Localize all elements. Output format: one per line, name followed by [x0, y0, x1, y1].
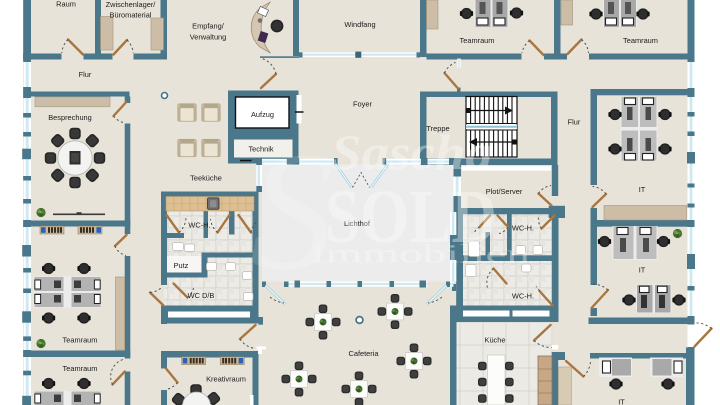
svg-text:Büromaterial: Büromaterial	[110, 11, 152, 20]
svg-text:IT: IT	[639, 266, 646, 275]
svg-text:WC-H.: WC-H.	[512, 224, 534, 233]
svg-text:Flur: Flur	[568, 118, 581, 127]
svg-text:Putz: Putz	[174, 261, 189, 270]
svg-text:Foyer: Foyer	[353, 100, 372, 109]
svg-text:Teamraum: Teamraum	[63, 364, 98, 373]
svg-text:WC-H.: WC-H.	[512, 292, 534, 301]
svg-text:Besprechung: Besprechung	[48, 113, 92, 122]
svg-text:Teamraum: Teamraum	[63, 336, 98, 345]
svg-text:S: S	[250, 117, 335, 305]
svg-text:Teamraum: Teamraum	[460, 36, 495, 45]
svg-text:Teamraum: Teamraum	[623, 36, 658, 45]
svg-text:Sascha: Sascha	[331, 124, 493, 180]
svg-text:IT: IT	[618, 398, 625, 405]
svg-text:WC-H.: WC-H.	[188, 221, 210, 230]
svg-text:IT: IT	[639, 185, 646, 194]
svg-text:Immobilien: Immobilien	[310, 240, 530, 269]
svg-text:Empfang/: Empfang/	[192, 22, 225, 31]
svg-text:Kreativraum: Kreativraum	[206, 375, 246, 384]
svg-text:Windfang: Windfang	[344, 20, 375, 29]
svg-text:Cafeteria: Cafeteria	[349, 349, 380, 358]
svg-text:Teeküche: Teeküche	[190, 174, 222, 183]
svg-text:Zwischenlager/: Zwischenlager/	[106, 0, 157, 9]
svg-text:Flur: Flur	[79, 70, 92, 79]
svg-text:Verwaltung: Verwaltung	[190, 33, 227, 42]
svg-text:WC D/B: WC D/B	[188, 291, 215, 300]
svg-text:Raum: Raum	[56, 0, 76, 9]
svg-text:Küche: Küche	[485, 336, 506, 345]
